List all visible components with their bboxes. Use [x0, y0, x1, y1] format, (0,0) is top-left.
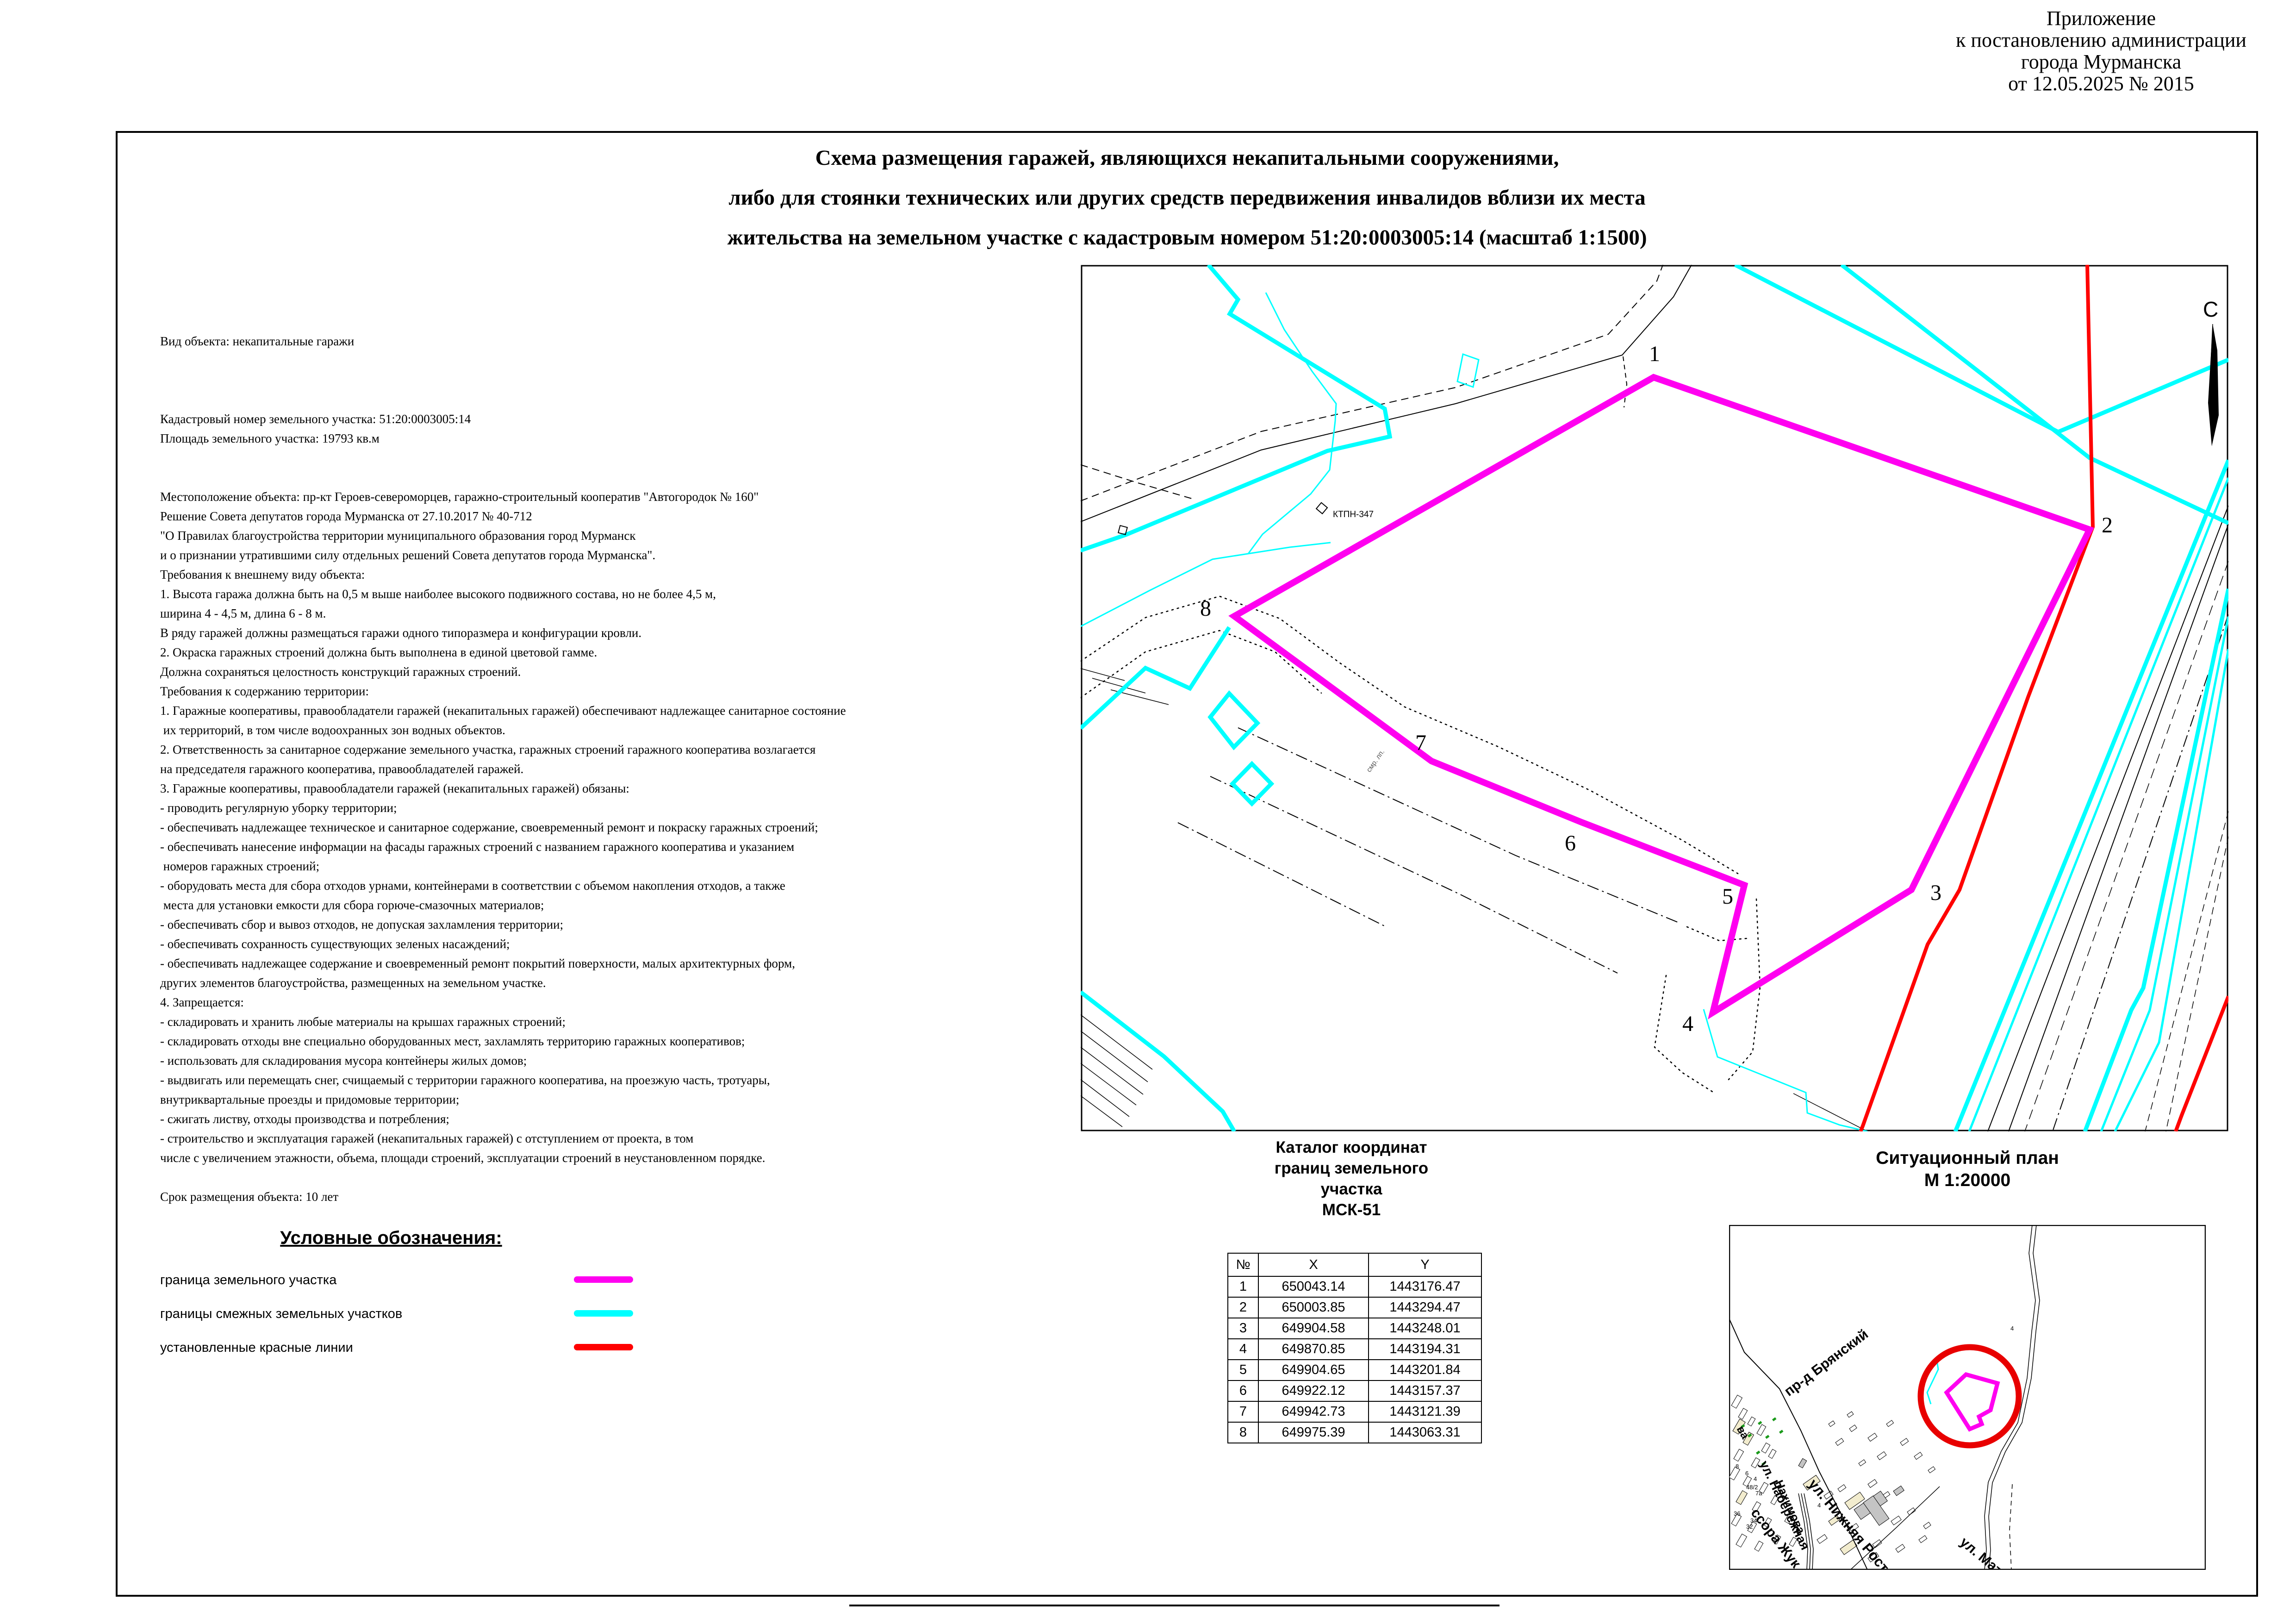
description-line: других элементов благоустройства, размещ… — [160, 973, 1079, 993]
description-line: и о признании утратившими силу отдельных… — [160, 545, 1079, 565]
house-number: 36 — [1734, 1510, 1740, 1517]
description-line: Кадастровый номер земельного участка: 51… — [160, 409, 1079, 429]
table-row: 6649922.121443157.37 — [1228, 1380, 1481, 1401]
description-line — [160, 468, 1079, 487]
coords-col-header: Y — [1369, 1253, 1481, 1276]
coord-x: 650043.14 — [1258, 1276, 1369, 1297]
table-row: 5649904.651443201.84 — [1228, 1360, 1481, 1380]
description-line: 4. Запрещается: — [160, 993, 1079, 1012]
legend-item: установленные красные линии — [160, 1338, 1039, 1357]
coord-x: 649904.58 — [1258, 1318, 1369, 1339]
coords-table-title-line: границ земельного — [1213, 1158, 1490, 1179]
coord-x: 650003.85 — [1258, 1297, 1369, 1318]
table-row: 3649904.581443248.01 — [1228, 1318, 1481, 1339]
description-line: Решение Совета депутатов города Мурманск… — [160, 506, 1079, 526]
legend-item: границы смежных земельных участков — [160, 1305, 1039, 1323]
ktpn-label: КТПН-347 — [1333, 510, 1374, 519]
description-line: - обеспечивать надлежащее содержание и с… — [160, 954, 1079, 973]
coord-y: 1443157.37 — [1369, 1380, 1481, 1401]
coords-table-title: Каталог координатграниц земельногоучастк… — [1213, 1137, 1490, 1220]
description-line: 2. Окраска гаражных строений должна быть… — [160, 643, 1079, 662]
description-line: на председателя гаражного кооператива, п… — [160, 759, 1079, 779]
legend-title: Условные обозначения: — [183, 1228, 599, 1249]
description-line: - использовать для складирования мусора … — [160, 1051, 1079, 1070]
description-line: их территорий, в том числе водоохранных … — [160, 720, 1079, 740]
description-line — [160, 390, 1079, 409]
description-line: Местоположение объекта: пр-кт Героев-сев… — [160, 487, 1079, 506]
description-line: - обеспечивать сбор и вывоз отходов, не … — [160, 915, 1079, 934]
description-line: Требования к содержанию территории: — [160, 681, 1079, 701]
house-number: 32 — [1746, 1523, 1753, 1530]
legend-item-label: границы смежных земельных участков — [160, 1305, 402, 1323]
description-line — [160, 448, 1079, 468]
vertex-label-2: 2 — [2102, 513, 2113, 537]
coords-col-header: № — [1228, 1253, 1258, 1276]
appendix-note: Приложениек постановлению администрацииг… — [1898, 7, 2296, 94]
description-line: 2. Ответственность за санитарное содержа… — [160, 740, 1079, 759]
house-number: 6 — [1745, 1470, 1748, 1477]
bottom-rule — [849, 1605, 1500, 1606]
point-number: 4 — [1228, 1339, 1258, 1360]
house-number: 4 — [1754, 1475, 1757, 1482]
coord-y: 1443194.31 — [1369, 1339, 1481, 1360]
coord-x: 649904.65 — [1258, 1360, 1369, 1380]
table-row: 4649870.851443194.31 — [1228, 1339, 1481, 1360]
coord-y: 1443176.47 — [1369, 1276, 1481, 1297]
situational-plan-scale: М 1:20000 — [1729, 1169, 2206, 1192]
vertex-label-8: 8 — [1200, 596, 1211, 621]
point-number: 2 — [1228, 1297, 1258, 1318]
description-line: - выдвигать или перемещать снег, счищаем… — [160, 1070, 1079, 1090]
table-row: 1650043.141443176.47 — [1228, 1276, 1481, 1297]
house-number: 8 — [1736, 1463, 1739, 1470]
coord-x: 649922.12 — [1258, 1380, 1369, 1401]
coord-x: 649942.73 — [1258, 1401, 1369, 1422]
point-number: 8 — [1228, 1422, 1258, 1443]
coord-y: 1443063.31 — [1369, 1422, 1481, 1443]
vertex-label-5: 5 — [1722, 884, 1733, 909]
vertex-label-3: 3 — [1930, 881, 1941, 905]
point-number: 7 — [1228, 1401, 1258, 1422]
description-line: Площадь земельного участка: 19793 кв.м — [160, 429, 1079, 448]
description-line: места для установки емкости для сбора го… — [160, 895, 1079, 915]
vertex-label-1: 1 — [1649, 342, 1660, 366]
coords-col-header: X — [1258, 1253, 1369, 1276]
point-number: 1 — [1228, 1276, 1258, 1297]
vertex-label-7: 7 — [1415, 731, 1426, 755]
legend-item-swatch — [574, 1276, 633, 1283]
description-line: Срок размещения объекта: 10 лет — [160, 1187, 1079, 1206]
description-line: 3. Гаражные кооперативы, правообладатели… — [160, 779, 1079, 798]
point-number: 3 — [1228, 1318, 1258, 1339]
description-line: - оборудовать места для сбора отходов ур… — [160, 876, 1079, 895]
situational-plan-title: Ситуационный план М 1:20000 — [1729, 1147, 2206, 1192]
description-line: ширина 4 - 4,5 м, длина 6 - 8 м. — [160, 604, 1079, 623]
situational-plan-title-line1: Ситуационный план — [1729, 1147, 2206, 1169]
coord-y: 1443294.47 — [1369, 1297, 1481, 1318]
legend-item-label: граница земельного участка — [160, 1271, 336, 1289]
description-line: - обеспечивать сохранность существующих … — [160, 934, 1079, 954]
house-number: 4 — [1817, 1502, 1821, 1509]
description-line: - складировать отходы вне специально обо… — [160, 1031, 1079, 1051]
description-line: числе с увеличением этажности, объема, п… — [160, 1148, 1079, 1168]
description-line: - складировать и хранить любые материалы… — [160, 1012, 1079, 1031]
table-row: 7649942.731443121.39 — [1228, 1401, 1481, 1422]
legend-item: граница земельного участка — [160, 1271, 1039, 1289]
point-number: 6 — [1228, 1380, 1258, 1401]
description-line: - сжигать листву, отходы производства и … — [160, 1109, 1079, 1129]
description-line: номеров гаражных строений; — [160, 856, 1079, 876]
point-number: 5 — [1228, 1360, 1258, 1380]
site-plan-map: КТПН-347 смр. лп. С 12345678 — [1081, 265, 2228, 1131]
legend-item-swatch — [574, 1344, 633, 1350]
appendix-line: от 12.05.2025 № 2015 — [1898, 73, 2296, 94]
vertex-label-4: 4 — [1682, 1012, 1693, 1036]
description-line: Требования к внешнему виду объекта: — [160, 565, 1079, 584]
description-line: Должна сохраняться целостность конструкц… — [160, 662, 1079, 681]
house-number: 7а — [1755, 1490, 1762, 1497]
coords-table: №XY 1650043.141443176.472650003.85144329… — [1227, 1253, 1482, 1443]
description-line: "О Правилах благоустройства территории м… — [160, 526, 1079, 545]
description-line: - обеспечивать нанесение информации на ф… — [160, 837, 1079, 856]
table-row: 8649975.391443063.31 — [1228, 1422, 1481, 1443]
coord-y: 1443201.84 — [1369, 1360, 1481, 1380]
description-line: В ряду гаражей должны размещаться гаражи… — [160, 623, 1079, 643]
description-line: 1. Высота гаража должна быть на 0,5 м вы… — [160, 584, 1079, 604]
coords-table-header: №XY — [1228, 1253, 1481, 1276]
description-line: - обеспечивать надлежащее техническое и … — [160, 818, 1079, 837]
description-line — [160, 370, 1079, 390]
object-description: Вид объекта: некапитальные гаражи Кадаст… — [160, 331, 1079, 1206]
house-number: 5 — [1780, 1488, 1783, 1495]
legend-item-swatch — [574, 1310, 633, 1317]
appendix-line: Приложение — [1898, 7, 2296, 29]
coord-y: 1443248.01 — [1369, 1318, 1481, 1339]
description-line: Вид объекта: некапитальные гаражи — [160, 331, 1079, 351]
house-number: 6 — [1841, 1516, 1844, 1523]
description-line — [160, 1168, 1079, 1187]
description-line: - строительство и эксплуатация гаражей (… — [160, 1129, 1079, 1148]
coord-y: 1443121.39 — [1369, 1401, 1481, 1422]
north-label: С — [2203, 297, 2218, 321]
coord-x: 649975.39 — [1258, 1422, 1369, 1443]
coords-table-title-line: МСК-51 — [1213, 1199, 1490, 1220]
appendix-line: к постановлению администрации — [1898, 29, 2296, 51]
house-number: 4 — [2010, 1325, 2014, 1332]
coords-table-title-line: Каталог координат — [1213, 1137, 1490, 1158]
table-row: 2650003.851443294.47 — [1228, 1297, 1481, 1318]
description-line: - проводить регулярную уборку территории… — [160, 798, 1079, 818]
legend-item-label: установленные красные линии — [160, 1338, 353, 1357]
description-line — [160, 351, 1079, 370]
appendix-line: города Мурманска — [1898, 51, 2296, 73]
description-line: внутриквартальные проезды и придомовые т… — [160, 1090, 1079, 1109]
description-line: 1. Гаражные кооперативы, правообладатели… — [160, 701, 1079, 720]
coord-x: 649870.85 — [1258, 1339, 1369, 1360]
vertex-label-6: 6 — [1565, 831, 1576, 856]
coords-table-title-line: участка — [1213, 1179, 1490, 1199]
situational-plan-map: пр-д Брянскийул. НабережнаяНахимоваул. Н… — [1729, 1225, 2206, 1570]
